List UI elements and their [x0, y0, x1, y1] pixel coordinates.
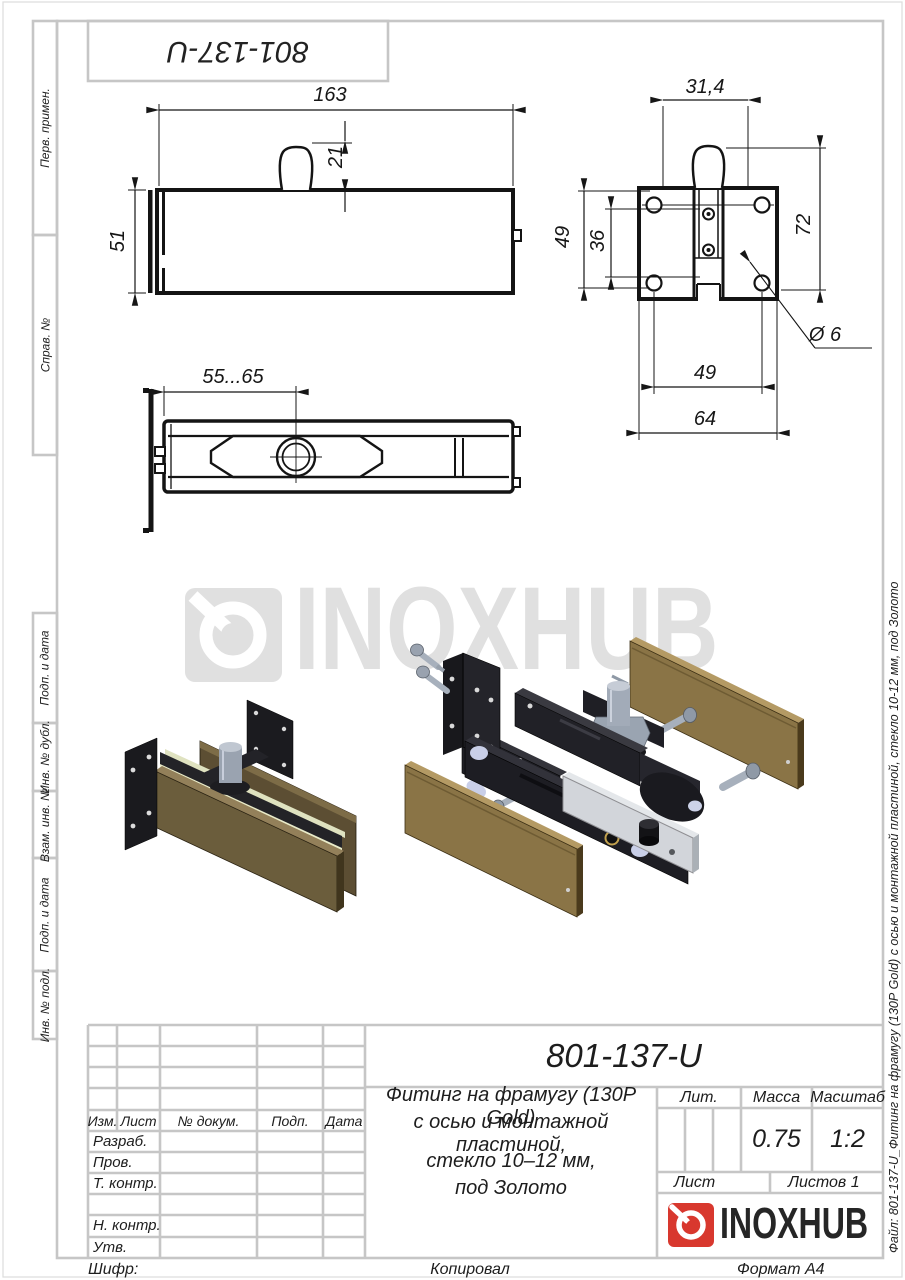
margin-label-vzam-inv: Взам. инв. №	[33, 791, 57, 858]
watermark-text: INOXHUB	[294, 570, 718, 688]
copied-label: Копировал	[400, 1261, 540, 1279]
dim-plate-pin-width: 31,4	[670, 76, 740, 98]
row-tkontr: Т. контр.	[93, 1175, 158, 1192]
dim-plate-holes-v: 49	[552, 219, 574, 255]
dim-front-pin-height: 21	[325, 139, 347, 175]
brand-logo-mark	[668, 1203, 714, 1247]
plate-view	[578, 100, 872, 440]
dim-plate-hole-dia: Ø 6	[790, 324, 860, 346]
file-note-vertical: Файл: 801-137-U_Фитинг на фрамугу (130Р …	[887, 593, 901, 1253]
brand-logo-text: INOXHUB	[720, 1202, 868, 1246]
margin-label-inv-podl: Инв. № подл.	[33, 971, 57, 1039]
watermark-logo-mark	[185, 588, 282, 682]
titleblock-mass-label: Масса	[741, 1089, 812, 1107]
margin-label-podp-data-2: Подп. и дата	[33, 858, 57, 971]
dim-plate-axis-v: 36	[587, 223, 609, 259]
col-ndokum: № докум.	[160, 1112, 257, 1129]
front-view	[128, 104, 521, 293]
margin-label-inv-dubl: Инв. № дубл.	[33, 723, 57, 791]
col-izm: Изм.	[88, 1112, 117, 1129]
titleblock-sheet-label: Лист	[674, 1174, 715, 1192]
margin-label-podp-data-1: Подп. и дата	[33, 613, 57, 723]
dim-plate-width: 64	[670, 408, 740, 430]
dim-plate-holes-h: 49	[670, 362, 740, 384]
titleblock-name-line2: с осью и монтажной пластиной,	[368, 1122, 654, 1146]
drawing-sheet: INOXHUB	[0, 0, 905, 1280]
col-podp: Подп.	[257, 1112, 323, 1129]
dim-front-height: 51	[107, 223, 129, 259]
titleblock-name-line3: стекло 10–12 мм,	[368, 1149, 654, 1173]
row-prov: Пров.	[93, 1154, 133, 1171]
format-label: Формат А4	[737, 1261, 825, 1279]
col-data: Дата	[323, 1112, 365, 1129]
row-razrab: Разраб.	[93, 1133, 147, 1150]
assembled-view-3d	[125, 700, 356, 912]
dim-plate-total-h: 72	[793, 207, 815, 243]
row-utv: Утв.	[93, 1239, 127, 1256]
titleblock-scale-value: 1:2	[812, 1124, 883, 1154]
stamp-designation: 801-137-U	[88, 21, 388, 81]
row-nkontr: Н. контр.	[93, 1217, 161, 1234]
col-list: Лист	[117, 1112, 160, 1129]
dim-top-offset: 55...65	[178, 366, 288, 388]
titleblock-mass-value: 0.75	[741, 1124, 812, 1154]
titleblock-scale-label: Масштаб	[812, 1089, 883, 1107]
titleblock-sheets-label: Листов 1	[788, 1174, 860, 1192]
titleblock-designation: 801-137-U	[365, 1028, 883, 1083]
margin-label-perv-primen: Перв. примен.	[33, 21, 57, 235]
titleblock-lit-label: Лит.	[657, 1089, 741, 1107]
top-view	[143, 386, 520, 533]
cipher-label: Шифр:	[88, 1261, 138, 1279]
margin-label-sprav-no: Справ. №	[33, 235, 57, 455]
titleblock-name-line4: под Золото	[368, 1176, 654, 1200]
dim-front-length: 163	[290, 84, 370, 106]
